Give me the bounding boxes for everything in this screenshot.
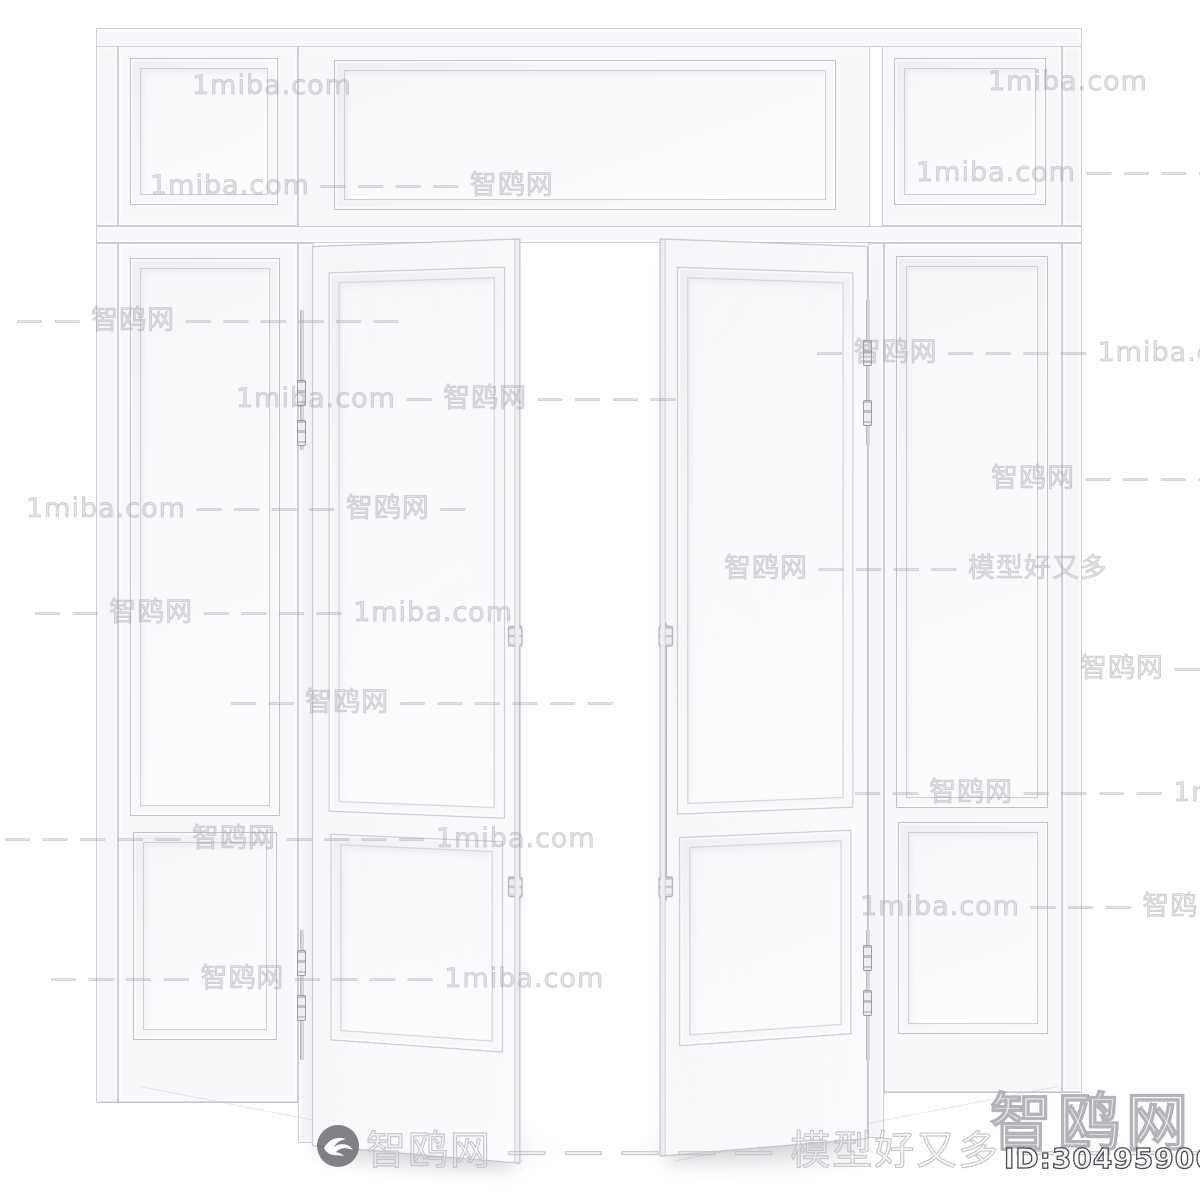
top-lintel	[96, 28, 1082, 47]
right-door-upper-panel	[677, 267, 853, 815]
watermark-tile: 智鸥网 —	[1080, 646, 1200, 685]
left-door-hinge-bottom-a	[297, 950, 306, 976]
left-sidelight-upper-inset	[140, 268, 270, 806]
left-sidelight-upper-panel	[130, 258, 280, 816]
right-door-hinge-top-b	[863, 400, 872, 426]
left-door-upper-panel	[329, 267, 505, 819]
render-scene: 1miba.com 1miba.com 1miba.com — — — — 智鸥…	[0, 0, 1200, 1200]
left-door-lower-inset	[340, 844, 492, 1041]
left-door-hinge-bottom-b	[297, 995, 306, 1021]
transom-left-panel-inset	[140, 68, 268, 195]
left-sidelight-baseline	[100, 1101, 298, 1103]
right-sidelight-upper-panel	[896, 256, 1048, 808]
transom-center-panel	[334, 60, 836, 210]
left-door-hinge-top-a	[297, 380, 306, 406]
left-door-pull-handle	[515, 622, 520, 902]
model-id: ID:304959062	[1004, 1142, 1200, 1175]
right-sidelight-lower-panel	[898, 822, 1048, 1034]
transom-left-panel	[130, 58, 278, 205]
transom-right-stile	[1062, 46, 1082, 226]
left-sidelight-lower-inset	[143, 842, 267, 1030]
left-sidelight-lower-panel	[133, 832, 277, 1040]
transom-center-panel-inset	[344, 70, 826, 200]
left-outer-stile	[96, 243, 118, 1103]
right-sidelight-lower-inset	[908, 832, 1038, 1024]
right-sidelight-baseline	[884, 1091, 1080, 1093]
right-sidelight-upper-inset	[906, 266, 1038, 798]
transom-bottom-rail	[96, 226, 1082, 243]
left-door-handle-bracket-bottom	[508, 876, 522, 897]
transom-left-stile	[96, 46, 118, 226]
right-door-lower-panel	[679, 830, 851, 1047]
left-door	[312, 238, 520, 1163]
left-door-handle-bracket-top	[508, 626, 522, 647]
right-door-pull-handle	[662, 622, 667, 902]
right-door-upper-inset	[687, 277, 843, 804]
right-door-handle-bracket-top	[659, 626, 673, 647]
right-door	[660, 238, 868, 1156]
right-door-handle-bracket-bottom	[659, 876, 673, 897]
left-door-upper-inset	[338, 277, 494, 808]
left-door-lower-panel	[331, 834, 503, 1053]
right-door-hinge-bottom-b	[863, 990, 872, 1016]
right-door-hinge-bottom-a	[863, 945, 872, 971]
transom-right-panel	[894, 58, 1046, 205]
right-door-hinge-top-a	[863, 340, 872, 366]
left-door-hinge-top-b	[297, 420, 306, 446]
transom-right-panel-inset	[904, 68, 1036, 195]
right-door-lower-inset	[689, 840, 841, 1035]
right-outer-stile	[1062, 243, 1082, 1093]
